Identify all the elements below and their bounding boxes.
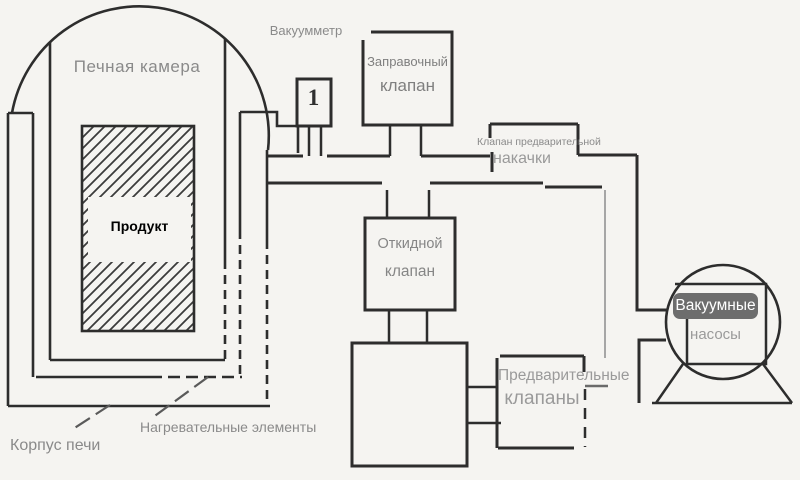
fill-valve-label-line2: клапан [363, 77, 452, 96]
vacuum-pumps-label-line2: насосы [673, 327, 758, 344]
product-label: Продукт [89, 219, 190, 234]
flap-valve-label-line2: клапан [365, 263, 455, 280]
furnace-body-label: Корпус печи [10, 437, 100, 455]
flap-valve-label-line1: Откидной [365, 237, 455, 253]
heating-elements-label: Нагревательные элементы [140, 420, 316, 435]
fill-valve-label-line1: Заправочный [363, 55, 452, 69]
prepump-valve-label-line2: накачки [482, 150, 562, 168]
furnace-chamber-label: Печная камера [57, 58, 217, 77]
preliminary-valves-label-line2: клапаны [480, 389, 604, 410]
gauge-reading: 1 [297, 85, 330, 110]
vacuum-furnace-diagram: Печная камера Вакуумметр 1 Заправочный к… [0, 0, 800, 480]
roughing-box [352, 343, 467, 466]
pump-inlet-line [637, 155, 668, 310]
pump-stand [652, 364, 792, 403]
vacuum-gauge-label: Вакуумметр [256, 24, 356, 38]
vacuum-pumps-label-badge: Вакуумные [673, 293, 758, 319]
pump-circle [666, 265, 780, 379]
preliminary-valves-label-line1: Предварительные [498, 367, 622, 384]
prepump-valve-label-line1: Клапан предварительной [477, 137, 597, 149]
